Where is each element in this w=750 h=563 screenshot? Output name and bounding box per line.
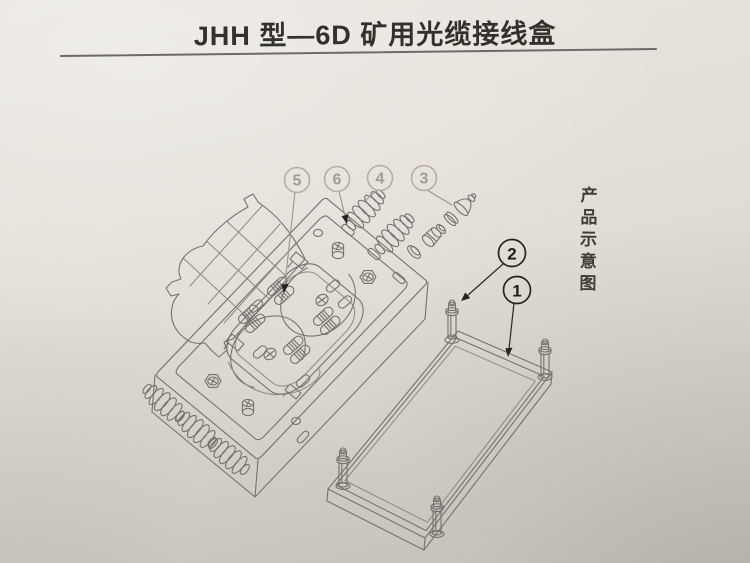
callout-6: 6 [325, 167, 350, 225]
cover-bolt [446, 300, 458, 339]
tray-screw [262, 346, 279, 362]
gland-port-hole [367, 247, 382, 261]
tray-slot [325, 278, 341, 293]
cable-gland [203, 432, 254, 480]
cover-bolt [539, 339, 551, 378]
callouts: 5 6 4 3 2 [281, 166, 530, 358]
cable-gland [138, 379, 189, 427]
callout-1: 1 [504, 277, 531, 358]
callout-3-number: 3 [420, 171, 429, 188]
callout-4-number: 4 [376, 171, 385, 188]
callout-1-number: 1 [512, 282, 521, 301]
callout-6-number: 6 [333, 172, 342, 189]
cable-gland [171, 406, 222, 454]
callout-3: 3 [412, 166, 453, 206]
callout-5-number: 5 [293, 173, 302, 190]
screw [242, 399, 253, 415]
hex-standoff [205, 375, 221, 388]
screw [332, 242, 343, 258]
flip-lid [166, 194, 305, 357]
cable-gland [341, 185, 391, 235]
cable-glands-top [341, 185, 482, 261]
hex-standoff [360, 271, 376, 284]
photographed-page: JHH 型—6D 矿用光缆接线盒 产品示意图 [0, 0, 750, 563]
cable-glands-left [138, 379, 254, 480]
callout-2-number: 2 [507, 245, 516, 264]
cover-plate [327, 300, 552, 550]
gland-port-hole [392, 271, 407, 285]
floor-hole [314, 230, 323, 237]
fiber-coil-guide [266, 249, 370, 351]
exploded-view-drawing: 5 6 4 3 2 [0, 0, 750, 563]
cover-bolt [337, 448, 349, 487]
tray-screw [314, 292, 331, 308]
tray-slot [337, 294, 353, 309]
callout-5: 5 [281, 168, 309, 294]
